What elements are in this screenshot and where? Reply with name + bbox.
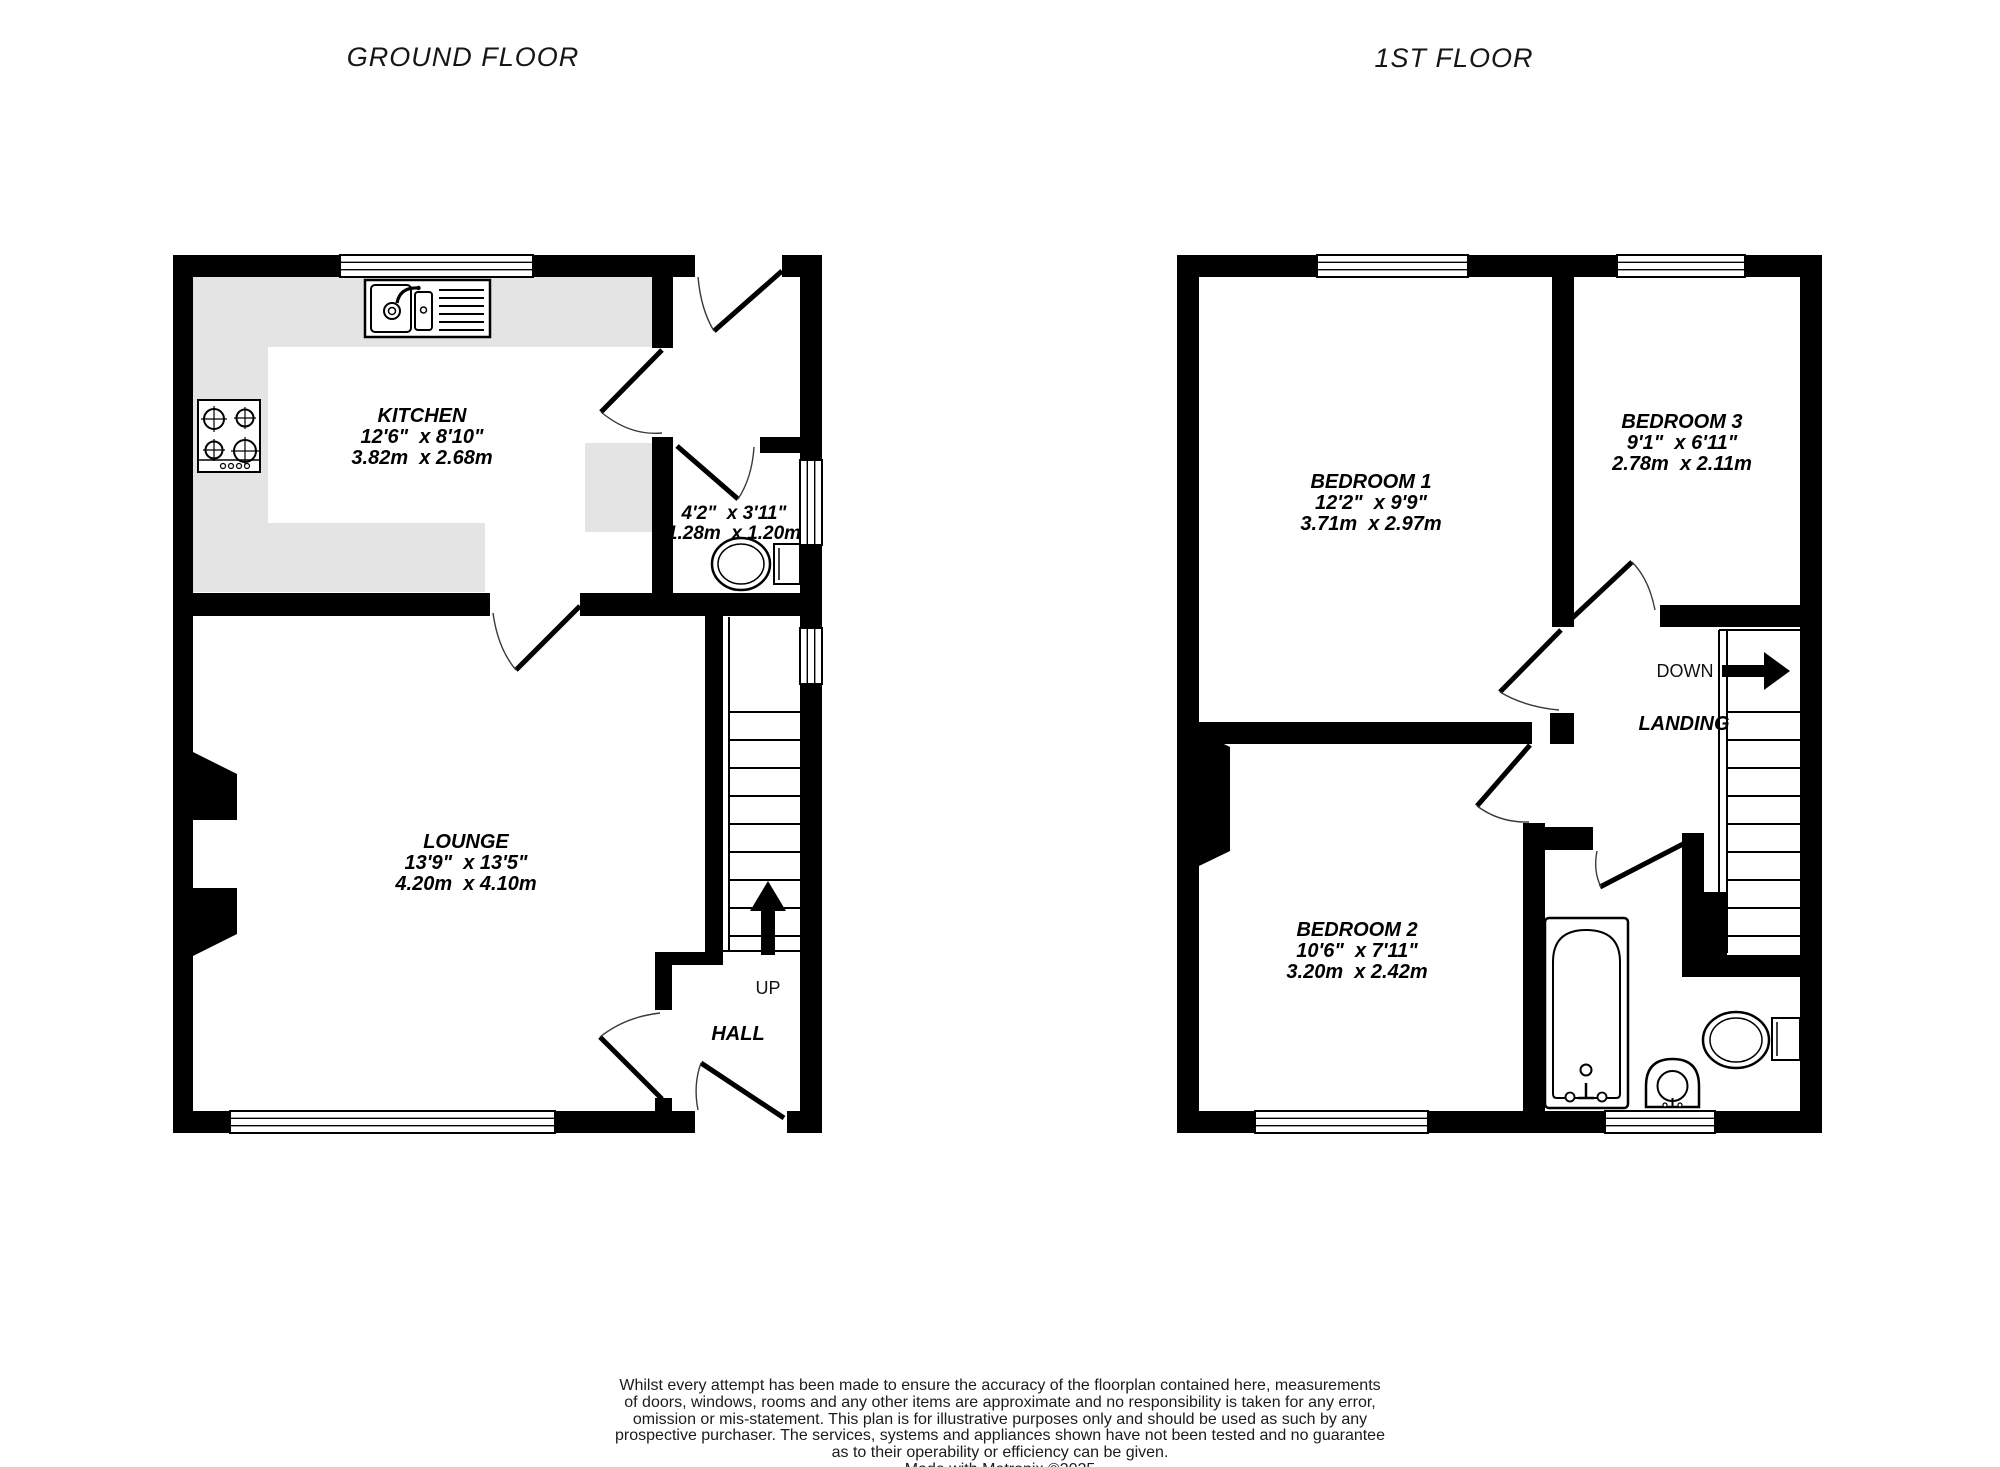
wc-toilet <box>712 538 800 590</box>
kitchen-label: KITCHEN 12'6" x 8'10" 3.82m x 2.68m <box>351 406 492 469</box>
wc-door-swing <box>677 446 754 499</box>
wc-window <box>800 460 822 545</box>
kitchen-window <box>340 255 533 277</box>
metropix-credit: Made with Metropix ©2025 <box>350 1462 1650 1467</box>
floorplan-page: GROUND FLOOR 1ST FLOOR KITCHEN 12'6" x 8… <box>0 0 2000 1467</box>
disclaimer-line: omission or mis-statement. This plan is … <box>350 1412 1650 1429</box>
disclaimer-line: as to their operability or efficiency ca… <box>350 1445 1650 1462</box>
bathroom-door-swing <box>1596 843 1685 887</box>
landing-name: LANDING <box>1638 714 1729 735</box>
ground-floor-plan <box>173 254 822 1134</box>
disclaimer-line: of doors, windows, rooms and any other i… <box>350 1395 1650 1412</box>
disclaimer-line: prospective purchaser. The services, sys… <box>350 1428 1650 1445</box>
bathroom-bath <box>1545 918 1628 1108</box>
bedroom1-door-swing <box>1500 630 1561 710</box>
down-arrow <box>1722 652 1790 690</box>
first-staircase <box>1719 630 1800 953</box>
ground-doors <box>493 271 784 1118</box>
lounge-metric: 4.20m x 4.10m <box>395 874 536 895</box>
bedroom3-label: BEDROOM 3 9'1" x 6'11" 2.78m x 2.11m <box>1612 412 1752 475</box>
up-arrow <box>750 881 786 955</box>
bedroom2-window <box>1255 1111 1428 1133</box>
ground-floor-title: GROUND FLOOR <box>347 42 580 73</box>
first-walls <box>1177 255 1822 1133</box>
bedroom1-metric: 3.71m x 2.97m <box>1300 514 1441 535</box>
kitchen-lounge-door-swing <box>493 606 580 670</box>
kitchen-imperial: 12'6" x 8'10" <box>351 427 492 448</box>
stairs-down-label: DOWN <box>1657 661 1714 682</box>
bathroom-window <box>1605 1111 1715 1133</box>
disclaimer: Whilst every attempt has been made to en… <box>350 1378 1650 1467</box>
lounge-hall-door-swing <box>600 1013 662 1099</box>
bedroom2-name: BEDROOM 2 <box>1286 920 1427 941</box>
lounge-imperial: 13'9" x 13'5" <box>395 853 536 874</box>
stairs-window <box>800 628 822 684</box>
bedroom3-door-swing <box>1568 562 1655 622</box>
front-door-swing <box>696 1063 784 1118</box>
bedroom1-window <box>1317 255 1468 277</box>
kitchen-sink <box>365 280 490 337</box>
bedroom2-metric: 3.20m x 2.42m <box>1286 962 1427 983</box>
kitchen-metric: 3.82m x 2.68m <box>351 448 492 469</box>
bedroom1-name: BEDROOM 1 <box>1300 472 1441 493</box>
lounge-label: LOUNGE 13'9" x 13'5" 4.20m x 4.10m <box>395 832 536 895</box>
wc-label: 4'2" x 3'11" 1.28m x 1.20m <box>667 504 801 544</box>
back-door-swing <box>698 271 782 331</box>
ground-windows <box>230 255 822 1133</box>
chimney-breast <box>193 752 237 956</box>
kitchen-name: KITCHEN <box>351 406 492 427</box>
stairs-up-label: UP <box>755 978 780 999</box>
ground-walls <box>173 255 822 1133</box>
first-floor-title: 1ST FLOOR <box>1374 43 1533 74</box>
kitchen-hob <box>198 400 260 472</box>
disclaimer-line: Whilst every attempt has been made to en… <box>350 1378 1650 1395</box>
bedroom1-label: BEDROOM 1 12'2" x 9'9" 3.71m x 2.97m <box>1300 472 1441 535</box>
bathroom-toilet <box>1703 1012 1800 1068</box>
hall-label: HALL <box>711 1024 764 1045</box>
lounge-window <box>230 1111 555 1133</box>
first-windows <box>1255 255 1745 1133</box>
bathroom-basin <box>1646 1059 1699 1107</box>
back-door-opening <box>695 254 782 278</box>
bedroom3-metric: 2.78m x 2.11m <box>1612 454 1752 475</box>
ground-staircase <box>723 617 800 955</box>
bedroom1-imperial: 12'2" x 9'9" <box>1300 493 1441 514</box>
kitchen-lobby-door-swing <box>601 350 662 433</box>
first-floor-plan <box>1177 255 1822 1133</box>
bedroom3-imperial: 9'1" x 6'11" <box>1612 433 1752 454</box>
bedroom2-imperial: 10'6" x 7'11" <box>1286 941 1427 962</box>
bedroom3-window <box>1617 255 1745 277</box>
bedroom3-name: BEDROOM 3 <box>1612 412 1752 433</box>
bedroom2-label: BEDROOM 2 10'6" x 7'11" 3.20m x 2.42m <box>1286 920 1427 983</box>
landing-label: LANDING <box>1638 714 1729 735</box>
hall-name: HALL <box>711 1024 764 1045</box>
chimney-breast-first <box>1199 732 1230 866</box>
bedroom2-door-swing <box>1477 745 1530 822</box>
wc-imperial: 4'2" x 3'11" <box>667 504 801 524</box>
lounge-name: LOUNGE <box>395 832 536 853</box>
wc-metric: 1.28m x 1.20m <box>667 524 801 544</box>
